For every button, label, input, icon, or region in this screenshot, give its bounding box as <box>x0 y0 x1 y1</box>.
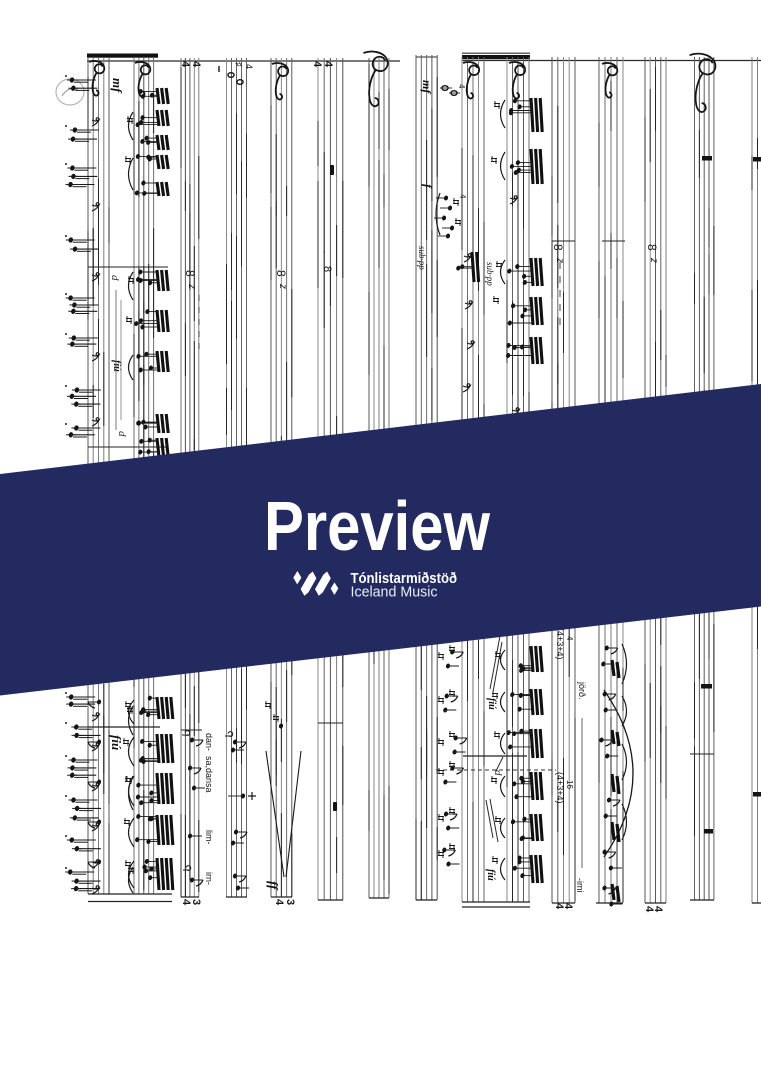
svg-text:z: z <box>277 283 288 289</box>
svg-text:fiú: fiú <box>109 735 124 750</box>
svg-text:4: 4 <box>652 906 664 913</box>
svg-text:4: 4 <box>244 64 254 69</box>
svg-text:z: z <box>186 283 197 289</box>
svg-text:lim-: lim- <box>204 830 214 845</box>
svg-text:Iceland Music: Iceland Music <box>351 584 438 600</box>
svg-text:4: 4 <box>179 61 191 68</box>
svg-text:4: 4 <box>458 194 467 199</box>
svg-text:16: 16 <box>565 780 574 789</box>
svg-text:4: 4 <box>273 899 285 906</box>
svg-text:(4+3+4): (4+3+4) <box>555 628 565 660</box>
svg-text:sa,dansa: sa,dansa <box>204 756 214 793</box>
svg-text:d: d <box>109 275 121 281</box>
svg-text:-imi: -imi <box>575 878 585 893</box>
svg-text:fiú: fiú <box>486 698 497 710</box>
svg-text:mf: mf <box>420 80 434 94</box>
svg-text:4: 4 <box>311 61 323 68</box>
svg-text:z: z <box>648 257 659 263</box>
svg-text:irn-: irn- <box>204 872 214 885</box>
svg-text:4: 4 <box>322 61 334 68</box>
svg-text:4: 4 <box>562 903 574 910</box>
svg-text:(4+3+4): (4+3+4) <box>555 772 565 804</box>
svg-text:fiú: fiú <box>111 360 122 372</box>
svg-text:8: 8 <box>551 244 565 251</box>
svg-text:4: 4 <box>565 636 574 641</box>
svg-text:fiú: fiú <box>485 869 496 881</box>
svg-text:3: 3 <box>284 899 296 905</box>
svg-text:sub·pp: sub·pp <box>417 246 427 270</box>
svg-text:mf: mf <box>110 78 125 94</box>
svg-text:d: d <box>116 431 128 437</box>
svg-text:♯: ♯ <box>234 62 244 67</box>
svg-text:4: 4 <box>190 61 202 68</box>
svg-text:d: d <box>492 770 504 776</box>
svg-text:4: 4 <box>457 84 466 89</box>
svg-text:8: 8 <box>274 270 288 277</box>
svg-text:8: 8 <box>645 244 659 251</box>
svg-text:dan-: dan- <box>204 733 214 751</box>
svg-text:8: 8 <box>321 266 333 272</box>
svg-text:8: 8 <box>183 270 197 277</box>
svg-text:sub·pp: sub·pp <box>485 262 495 286</box>
svg-text:Preview: Preview <box>264 487 490 565</box>
svg-text:jörð.: jörð. <box>577 681 587 700</box>
svg-text:3: 3 <box>190 899 202 905</box>
